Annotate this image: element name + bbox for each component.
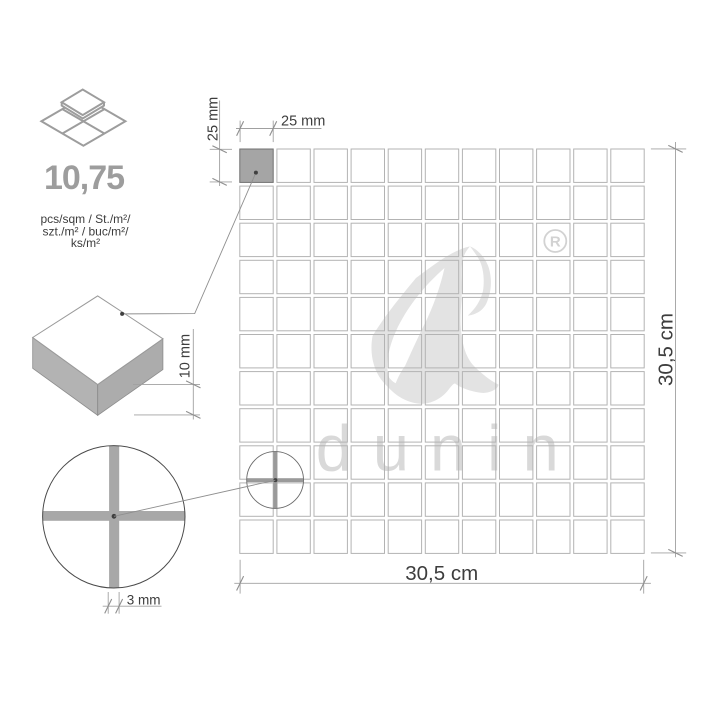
svg-text:25 mm: 25 mm	[205, 97, 221, 141]
svg-text:30,5 cm: 30,5 cm	[655, 313, 678, 386]
svg-text:25 mm: 25 mm	[281, 113, 325, 129]
svg-text:R: R	[550, 234, 561, 251]
svg-text:10 mm: 10 mm	[177, 334, 193, 378]
svg-text:3 mm: 3 mm	[127, 592, 161, 607]
svg-text:10,75: 10,75	[44, 159, 124, 197]
svg-text:dunin: dunin	[316, 412, 580, 485]
svg-text:30,5 cm: 30,5 cm	[405, 562, 478, 585]
svg-text:ks/m²: ks/m²	[71, 236, 100, 250]
